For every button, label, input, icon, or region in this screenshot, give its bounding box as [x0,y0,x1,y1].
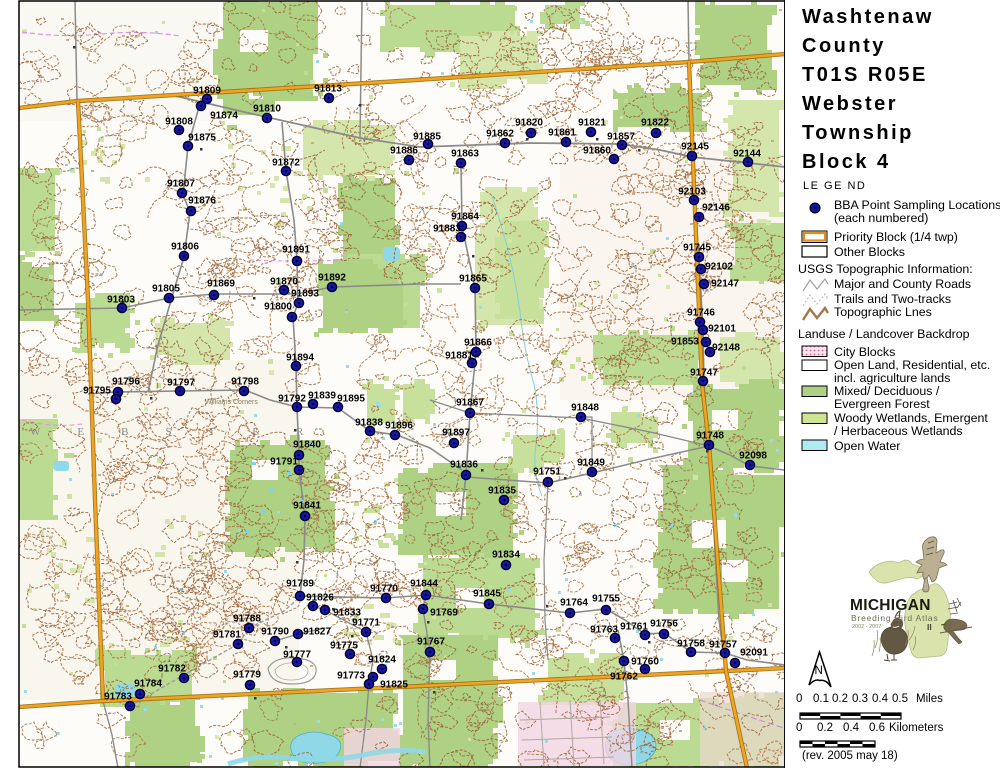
svg-text:91775: 91775 [330,641,358,652]
svg-text:91820: 91820 [515,118,543,129]
svg-text:92146: 92146 [702,203,730,214]
svg-text:91763: 91763 [590,625,618,636]
svg-text:92144: 92144 [733,149,761,160]
svg-text:91872: 91872 [272,158,300,169]
svg-text:91886: 91886 [390,146,418,157]
svg-text:91869: 91869 [207,279,235,290]
svg-text:91853: 91853 [671,337,699,348]
svg-text:91771: 91771 [352,618,380,629]
svg-text:91874: 91874 [210,111,238,122]
svg-text:91866: 91866 [464,338,492,349]
svg-text:91795: 91795 [83,386,111,397]
svg-text:91806: 91806 [171,242,199,253]
svg-text:91781: 91781 [213,630,241,641]
svg-text:91745: 91745 [683,243,711,254]
svg-text:91885: 91885 [413,132,441,143]
svg-text:91747: 91747 [690,368,718,379]
svg-text:91770: 91770 [370,584,398,595]
svg-text:91865: 91865 [459,274,487,285]
svg-text:91788: 91788 [233,614,261,625]
svg-text:Williams Corners: Williams Corners [205,399,258,406]
svg-text:91881: 91881 [445,351,473,362]
svg-text:91800: 91800 [264,302,292,313]
svg-text:91797: 91797 [167,378,195,389]
svg-text:92147: 92147 [711,279,739,290]
svg-text:91867: 91867 [456,398,484,409]
svg-text:91757: 91757 [709,640,737,651]
svg-text:91838: 91838 [355,418,383,429]
svg-text:91813: 91813 [314,84,342,95]
svg-text:91841: 91841 [293,501,321,512]
svg-text:91863: 91863 [451,149,479,160]
svg-text:91758: 91758 [677,639,705,650]
svg-text:92091: 92091 [740,648,768,659]
svg-text:91773: 91773 [337,671,365,682]
svg-text:91779: 91779 [233,670,261,681]
svg-text:92145: 92145 [681,142,709,153]
svg-text:91883: 91883 [433,224,461,235]
svg-text:91834: 91834 [492,550,520,561]
svg-text:91782: 91782 [158,664,186,675]
svg-text:91844: 91844 [410,579,438,590]
svg-text:91864: 91864 [451,212,479,223]
svg-text:91875: 91875 [188,133,216,144]
svg-text:92098: 92098 [739,451,767,462]
svg-text:91784: 91784 [134,679,162,690]
svg-text:91809: 91809 [193,86,221,97]
svg-text:91839: 91839 [308,391,336,402]
svg-text:91824: 91824 [368,655,396,666]
svg-text:91860: 91860 [583,146,611,157]
svg-text:91791: 91791 [270,457,298,468]
svg-text:91762: 91762 [610,672,638,683]
svg-text:91783: 91783 [104,692,132,703]
svg-text:91835: 91835 [488,486,516,497]
svg-text:91777: 91777 [283,650,311,661]
svg-text:91827: 91827 [303,627,331,638]
svg-text:91896: 91896 [385,421,413,432]
svg-text:91862: 91862 [486,129,514,140]
svg-text:91894: 91894 [286,353,314,364]
svg-text:91755: 91755 [592,594,620,605]
svg-text:91805: 91805 [152,284,180,295]
svg-text:91822: 91822 [641,118,669,129]
svg-text:91807: 91807 [167,179,195,190]
svg-text:91769: 91769 [430,608,458,619]
svg-text:91756: 91756 [650,619,678,630]
svg-text:91748: 91748 [696,431,724,442]
svg-text:91840: 91840 [293,440,321,451]
svg-text:91897: 91897 [442,428,470,439]
svg-text:91746: 91746 [687,308,715,319]
svg-text:91803: 91803 [107,295,135,306]
svg-text:92102: 92102 [705,262,733,273]
svg-text:N: N [815,665,823,677]
svg-text:91767: 91767 [417,637,445,648]
svg-text:91761: 91761 [620,622,648,633]
svg-text:91845: 91845 [473,589,501,600]
svg-text:91792: 91792 [278,394,306,405]
svg-text:91870: 91870 [270,277,298,288]
svg-text:91857: 91857 [607,132,635,143]
svg-text:91891: 91891 [282,245,310,256]
svg-text:91796: 91796 [112,377,140,388]
svg-text:91895: 91895 [337,394,365,405]
svg-text:91826: 91826 [306,593,334,604]
svg-text:WEBSTER: WEBSTER [30,426,340,438]
svg-text:91849: 91849 [577,458,605,469]
svg-text:91825: 91825 [380,680,408,691]
svg-text:91808: 91808 [165,117,193,128]
svg-text:91848: 91848 [571,403,599,414]
svg-text:91790: 91790 [261,627,289,638]
svg-text:91893: 91893 [291,289,319,300]
svg-text:91821: 91821 [578,118,606,129]
svg-text:91789: 91789 [286,579,314,590]
svg-text:91876: 91876 [188,196,216,207]
svg-text:92148: 92148 [712,343,740,354]
svg-text:92101: 92101 [708,324,736,335]
svg-text:92103: 92103 [678,187,706,198]
svg-text:91751: 91751 [533,467,561,478]
svg-text:91764: 91764 [560,598,588,609]
svg-text:91836: 91836 [450,460,478,471]
svg-text:91810: 91810 [253,104,281,115]
svg-text:91861: 91861 [548,128,576,139]
svg-text:91798: 91798 [231,377,259,388]
svg-text:91892: 91892 [318,273,346,284]
